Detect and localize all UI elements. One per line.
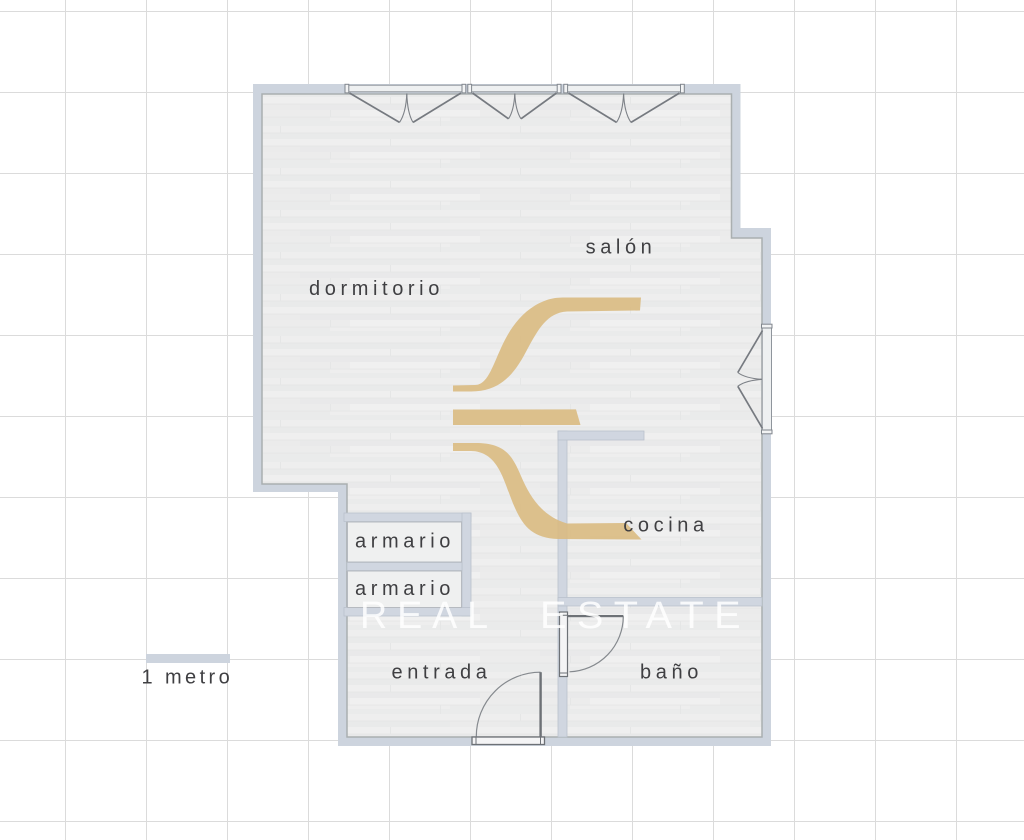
svg-text:entrada: entrada xyxy=(391,662,491,684)
svg-text:armario: armario xyxy=(355,578,455,600)
svg-text:baño: baño xyxy=(640,662,703,684)
svg-text:REAL: REAL xyxy=(360,595,498,637)
svg-text:armario: armario xyxy=(355,531,455,553)
svg-text:dormitorio: dormitorio xyxy=(309,278,444,300)
svg-text:salón: salón xyxy=(586,237,657,259)
svg-text:cocina: cocina xyxy=(623,515,708,537)
svg-text:ESTATE: ESTATE xyxy=(540,595,751,637)
svg-text:1 metro: 1 metro xyxy=(142,667,234,689)
